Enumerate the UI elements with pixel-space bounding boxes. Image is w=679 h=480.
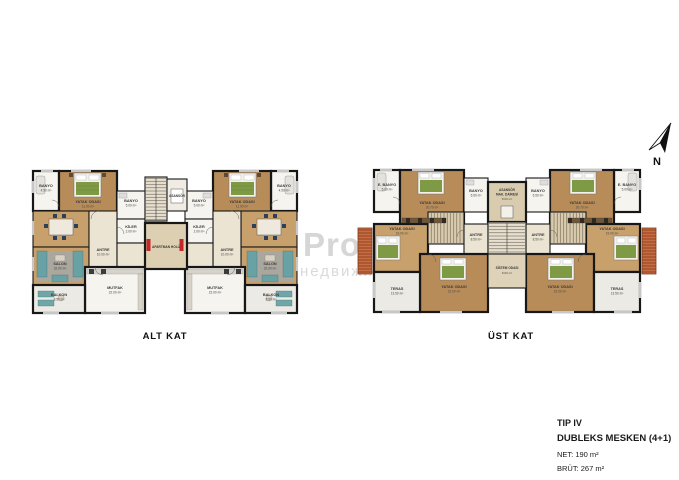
svg-text:20.70 m²: 20.70 m² xyxy=(576,206,589,210)
svg-text:22.00 m²: 22.00 m² xyxy=(109,291,122,295)
svg-text:MAK. DAİRESİ: MAK. DAİRESİ xyxy=(496,193,518,197)
svg-text:32.00 m²: 32.00 m² xyxy=(54,267,67,271)
svg-text:MUTFAK: MUTFAK xyxy=(207,286,223,290)
svg-text:6.50 m²: 6.50 m² xyxy=(471,194,482,198)
svg-text:BANYO: BANYO xyxy=(192,199,206,203)
unit-net-area: NET: 190 m² xyxy=(557,451,671,459)
label-asansor: ASANSÖR xyxy=(169,193,186,198)
svg-text:19.00 m²: 19.00 m² xyxy=(606,232,619,236)
svg-text:11.00 m²: 11.00 m² xyxy=(82,205,94,209)
svg-text:2.00 m²: 2.00 m² xyxy=(126,230,137,234)
svg-text:YATAK ODASI: YATAK ODASI xyxy=(441,285,466,289)
svg-text:8.50 m²: 8.50 m² xyxy=(533,238,544,242)
svg-text:BANYO: BANYO xyxy=(39,184,53,188)
svg-text:19.00 m²: 19.00 m² xyxy=(396,232,409,236)
svg-text:MUTFAK: MUTFAK xyxy=(107,286,123,290)
svg-text:22.00 m²: 22.00 m² xyxy=(209,291,222,295)
svg-text:22.00 m²: 22.00 m² xyxy=(448,290,461,294)
svg-text:YATAK ODASI: YATAK ODASI xyxy=(547,285,572,289)
svg-text:YATAK ODASI: YATAK ODASI xyxy=(389,227,414,231)
svg-text:E. BANYO: E. BANYO xyxy=(378,183,396,187)
svg-text:TERAS: TERAS xyxy=(611,287,624,291)
svg-text:BALKON: BALKON xyxy=(263,293,279,297)
svg-text:5.00 m²: 5.00 m² xyxy=(126,204,137,208)
floor-plan-ust-kat: E. BANYO 5.00 m² YATAK ODASI 20.70 m² BA… xyxy=(356,164,658,318)
caption-ust-kat: ÜST KAT xyxy=(488,331,534,342)
svg-text:11.00 m²: 11.00 m² xyxy=(236,205,248,209)
svg-text:5.00 m²: 5.00 m² xyxy=(382,188,393,192)
doormat-left xyxy=(147,239,151,251)
svg-text:4.50 m²: 4.50 m² xyxy=(279,189,290,193)
svg-text:8.00 m²: 8.00 m² xyxy=(502,197,512,201)
svg-text:KİLER: KİLER xyxy=(193,225,205,229)
svg-text:13.50 m²: 13.50 m² xyxy=(611,292,624,296)
svg-text:13.50 m²: 13.50 m² xyxy=(391,292,404,296)
svg-text:YATAK ODASI: YATAK ODASI xyxy=(75,200,100,204)
svg-text:YATAK ODASI: YATAK ODASI xyxy=(419,201,444,205)
svg-text:32.00 m²: 32.00 m² xyxy=(264,267,277,271)
svg-text:6.50 m²: 6.50 m² xyxy=(533,194,544,198)
svg-text:SALON: SALON xyxy=(53,262,67,266)
unit-type-code: TIP IV xyxy=(557,419,671,428)
unit-info-block: TIP IV DUBLEKS MESKEN (4+1) NET: 190 m² … xyxy=(557,419,671,473)
svg-text:8.50 m²: 8.50 m² xyxy=(54,298,65,302)
svg-text:BANYO: BANYO xyxy=(469,189,483,193)
svg-text:TERAS: TERAS xyxy=(391,287,404,291)
svg-text:4.50 m²: 4.50 m² xyxy=(41,189,52,193)
svg-text:ASANSÖR: ASANSÖR xyxy=(499,187,516,192)
svg-text:E. BANYO: E. BANYO xyxy=(618,183,636,187)
svg-text:8.50 m²: 8.50 m² xyxy=(471,238,482,242)
north-arrow: N xyxy=(644,120,676,168)
svg-text:SİSTEM ODASI: SİSTEM ODASI xyxy=(496,266,519,270)
svg-text:BANYO: BANYO xyxy=(531,189,545,193)
svg-text:ANTRE: ANTRE xyxy=(220,248,234,252)
svg-text:10.00 m²: 10.00 m² xyxy=(97,253,110,257)
svg-text:ANTRE: ANTRE xyxy=(469,233,483,237)
svg-text:8.00 m²: 8.00 m² xyxy=(502,271,512,275)
north-label: N xyxy=(653,156,661,168)
svg-text:22.00 m²: 22.00 m² xyxy=(554,290,567,294)
svg-text:BANYO: BANYO xyxy=(277,184,291,188)
svg-text:5.00 m²: 5.00 m² xyxy=(622,188,633,192)
svg-text:BANYO: BANYO xyxy=(124,199,138,203)
svg-text:SALON: SALON xyxy=(263,262,277,266)
unit-gross-area: BRÜT: 267 m² xyxy=(557,465,671,473)
label-apartman-holu: APARTMAN HOLÜ xyxy=(152,244,181,249)
unit-type-name: DUBLEKS MESKEN (4+1) xyxy=(557,434,671,444)
svg-text:20.70 m²: 20.70 m² xyxy=(426,206,439,210)
svg-text:10.00 m²: 10.00 m² xyxy=(221,253,234,257)
caption-alt-kat: ALT KAT xyxy=(143,331,188,342)
svg-text:8.50 m²: 8.50 m² xyxy=(266,298,277,302)
svg-text:5.00 m²: 5.00 m² xyxy=(194,204,205,208)
alt-core xyxy=(145,177,187,269)
svg-text:KİLER: KİLER xyxy=(125,225,137,229)
svg-text:ANTRE: ANTRE xyxy=(96,248,110,252)
svg-text:YATAK ODASI: YATAK ODASI xyxy=(229,200,254,204)
doormat-right xyxy=(180,239,184,251)
elevator-shaft xyxy=(501,206,513,218)
svg-text:BALKON: BALKON xyxy=(51,293,67,297)
watermark-line1: Pro xyxy=(303,226,361,264)
svg-text:ANTRE: ANTRE xyxy=(531,233,545,237)
floor-plan-alt-kat: BANYO 4.50 m² YATAK ODASI 11.00 m² BANYO… xyxy=(29,167,301,317)
svg-text:2.00 m²: 2.00 m² xyxy=(194,230,205,234)
svg-text:YATAK ODASI: YATAK ODASI xyxy=(599,227,624,231)
ust-unit-right xyxy=(526,169,656,313)
svg-text:YATAK ODASI: YATAK ODASI xyxy=(569,201,594,205)
